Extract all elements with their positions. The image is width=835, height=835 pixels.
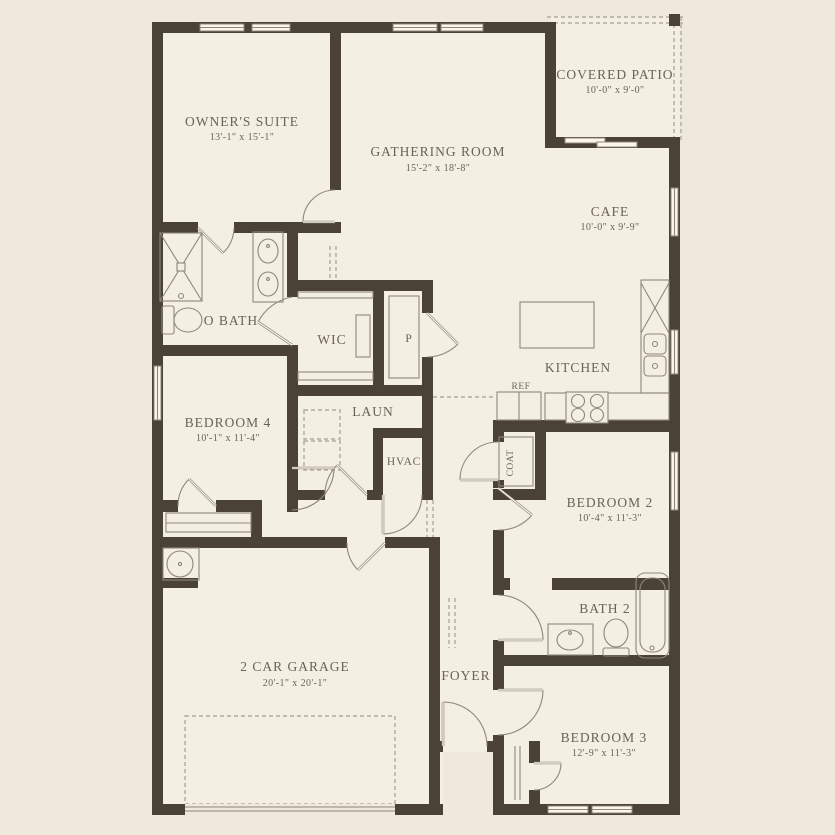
room-dims-covered-patio: 10'-0" x 9'-0"	[585, 85, 644, 96]
room-label-foyer: FOYER	[441, 668, 490, 683]
garage-overhead-door	[185, 804, 395, 815]
room-label-hvac: HVAC	[387, 456, 421, 468]
room-dims-bedroom4: 10'-1" x 11'-4"	[196, 433, 260, 444]
floor-area	[0, 0, 835, 835]
room-label-covered-patio: COVERED PATIO	[556, 67, 673, 82]
room-label-bedroom2: BEDROOM 2	[567, 495, 654, 510]
window-bedroom4	[154, 366, 161, 420]
room-dims-bedroom2: 10'-4" x 11'-3"	[578, 513, 642, 524]
floor-plan-page: OWNER'S SUITE 13'-1" x 15'-1" GATHERING …	[0, 0, 835, 835]
room-label-cafe: CAFE	[591, 204, 630, 219]
window-cafe	[671, 188, 678, 236]
room-label-kitchen: KITCHEN	[545, 360, 611, 375]
window-kitchen	[671, 330, 678, 374]
room-dims-owners-suite: 13'-1" x 15'-1"	[210, 132, 274, 143]
room-label-bedroom4: BEDROOM 4	[185, 415, 272, 430]
room-label-owners-bath: O BATH	[204, 313, 258, 328]
room-label-wic: WIC	[317, 332, 346, 347]
room-dims-garage: 20'-1" x 20'-1"	[263, 678, 327, 689]
window-bedroom2	[671, 452, 678, 510]
room-dims-gathering-room: 15'-2" x 18'-8"	[406, 163, 470, 174]
label-refrigerator: REF	[512, 382, 531, 392]
room-label-laundry: LAUN	[352, 404, 394, 419]
room-label-bedroom3: BEDROOM 3	[561, 730, 648, 745]
room-label-owners-suite: OWNER'S SUITE	[185, 114, 299, 129]
floor-plan: OWNER'S SUITE 13'-1" x 15'-1" GATHERING …	[0, 0, 835, 835]
room-dims-cafe: 10'-0" x 9'-9"	[580, 222, 639, 233]
label-coat: COAT	[506, 450, 516, 477]
room-label-garage: 2 CAR GARAGE	[240, 659, 350, 674]
stove-icon	[566, 392, 608, 423]
room-label-bath2: BATH 2	[579, 601, 630, 616]
room-dims-bedroom3: 12'-9" x 11'-3"	[572, 748, 636, 759]
room-label-gathering-room: GATHERING ROOM	[370, 144, 505, 159]
room-label-pantry: P	[405, 333, 412, 345]
